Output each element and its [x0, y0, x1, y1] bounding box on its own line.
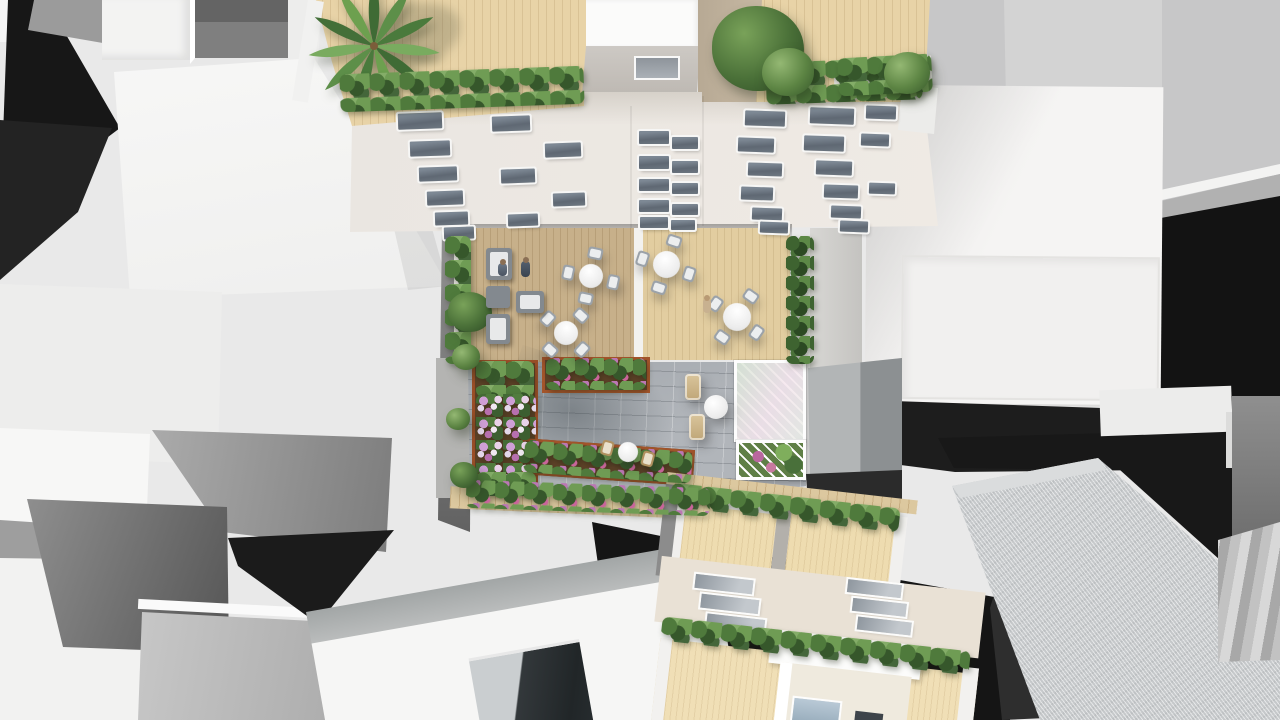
context-white-slab-right	[1099, 386, 1233, 437]
facade-window	[553, 192, 585, 206]
lounge-sofa	[486, 314, 510, 344]
facade-window	[760, 222, 788, 234]
context-gray-block-bl	[138, 608, 334, 720]
facade-window	[671, 220, 695, 230]
facade-window	[866, 105, 896, 119]
facade-window	[672, 137, 698, 149]
facade-window	[869, 183, 895, 195]
tree	[762, 48, 814, 96]
facade-window	[398, 112, 443, 130]
facade-window	[824, 184, 858, 198]
courtyard-gray-block	[806, 356, 904, 482]
facade-window	[672, 183, 698, 194]
facade-window	[672, 161, 698, 173]
facade-window	[840, 221, 868, 233]
facade-window	[435, 211, 468, 225]
tree	[452, 344, 480, 370]
facade-window	[545, 142, 581, 157]
terrace-chair	[561, 264, 576, 281]
tree	[446, 408, 470, 430]
round-table-top	[704, 395, 728, 419]
context-recess-inner-shadow	[195, 0, 288, 22]
aerial-render-canvas	[0, 0, 1280, 720]
hedge-planting	[786, 236, 814, 364]
facade-seam	[702, 96, 704, 226]
lounge-chair	[689, 414, 705, 440]
lounge-chair	[685, 374, 701, 400]
facade-window	[748, 162, 782, 176]
context-shadow-wedge	[0, 120, 118, 290]
facade-window	[640, 217, 668, 228]
terrace-side-wall-right	[810, 228, 862, 372]
lounge-sofa	[516, 291, 544, 313]
outdoor-table-set	[687, 378, 745, 436]
facade-window	[804, 135, 844, 151]
person	[498, 263, 507, 276]
context-white-block	[102, 0, 190, 60]
terrace-chair	[587, 246, 604, 261]
facade-window	[810, 107, 855, 125]
dog	[703, 299, 711, 313]
hedge-planting	[476, 361, 534, 397]
wicker-chair	[600, 439, 615, 457]
roof-inset-panel	[901, 255, 1160, 401]
facade-window	[741, 186, 773, 200]
facade-window	[639, 156, 669, 169]
facade-window	[861, 134, 889, 147]
facade-window	[492, 115, 531, 131]
facade-window	[831, 205, 861, 218]
tree	[884, 52, 930, 94]
context-stepped-bands	[1214, 518, 1280, 664]
facade-window	[745, 110, 785, 126]
round-table-top	[577, 262, 605, 290]
round-table-top	[616, 440, 640, 464]
facade-window	[752, 207, 782, 220]
facade-window	[419, 166, 457, 181]
facade-window	[738, 137, 774, 152]
elevator-box-vent	[636, 58, 678, 78]
facade-window	[427, 190, 463, 205]
tree	[450, 462, 478, 488]
round-table-top	[649, 247, 683, 281]
facade-window	[639, 131, 669, 144]
facade-seam	[630, 106, 632, 228]
facade-window	[508, 213, 538, 226]
facade-window	[501, 168, 535, 183]
facade-window	[816, 160, 852, 175]
facade-window	[639, 200, 669, 212]
facade-window	[672, 204, 698, 215]
facade-window	[639, 179, 669, 191]
facade-window	[410, 140, 450, 156]
rooftop-elevator-box	[586, 0, 700, 48]
lounge-sofa	[486, 286, 510, 308]
person	[521, 261, 530, 277]
